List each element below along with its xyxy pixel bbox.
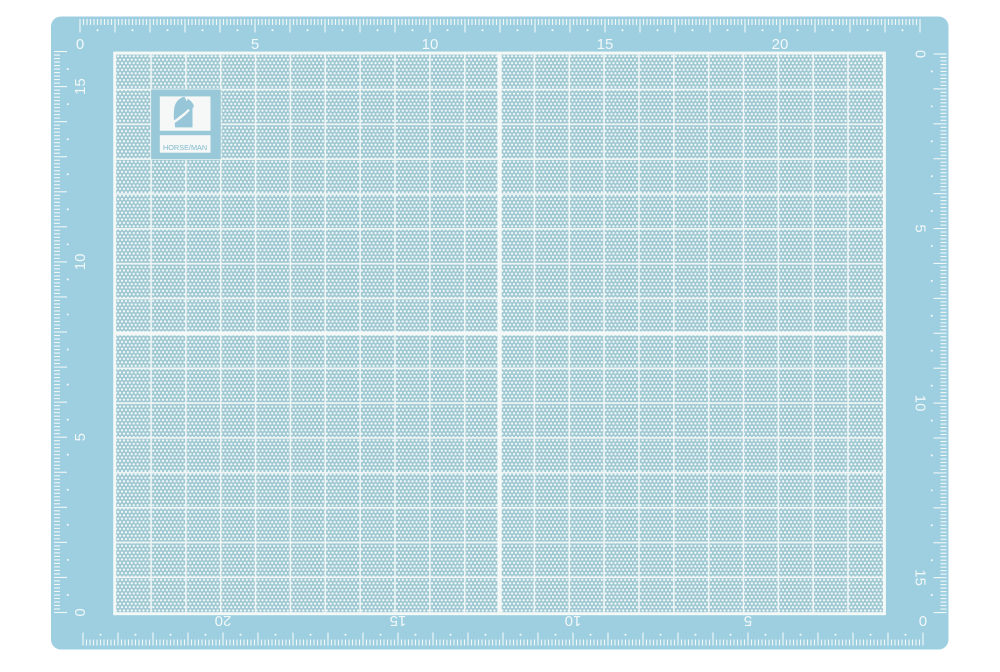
svg-text:5: 5	[744, 612, 752, 629]
svg-text:0: 0	[76, 36, 84, 53]
svg-text:10: 10	[422, 36, 439, 53]
svg-text:10: 10	[565, 612, 582, 629]
svg-text:5: 5	[251, 36, 259, 53]
svg-text:20: 20	[215, 612, 232, 629]
svg-text:10: 10	[72, 254, 89, 271]
svg-text:HORSE/MAN: HORSE/MAN	[163, 143, 207, 152]
svg-text:15: 15	[912, 569, 929, 586]
svg-text:5: 5	[912, 224, 929, 232]
svg-text:15: 15	[597, 36, 614, 53]
svg-text:0: 0	[919, 612, 927, 629]
svg-text:5: 5	[72, 433, 89, 441]
svg-text:10: 10	[912, 395, 929, 412]
svg-text:0: 0	[912, 50, 929, 58]
svg-text:15: 15	[72, 78, 89, 95]
svg-text:15: 15	[390, 612, 407, 629]
svg-text:20: 20	[772, 36, 789, 53]
svg-text:0: 0	[72, 608, 89, 616]
